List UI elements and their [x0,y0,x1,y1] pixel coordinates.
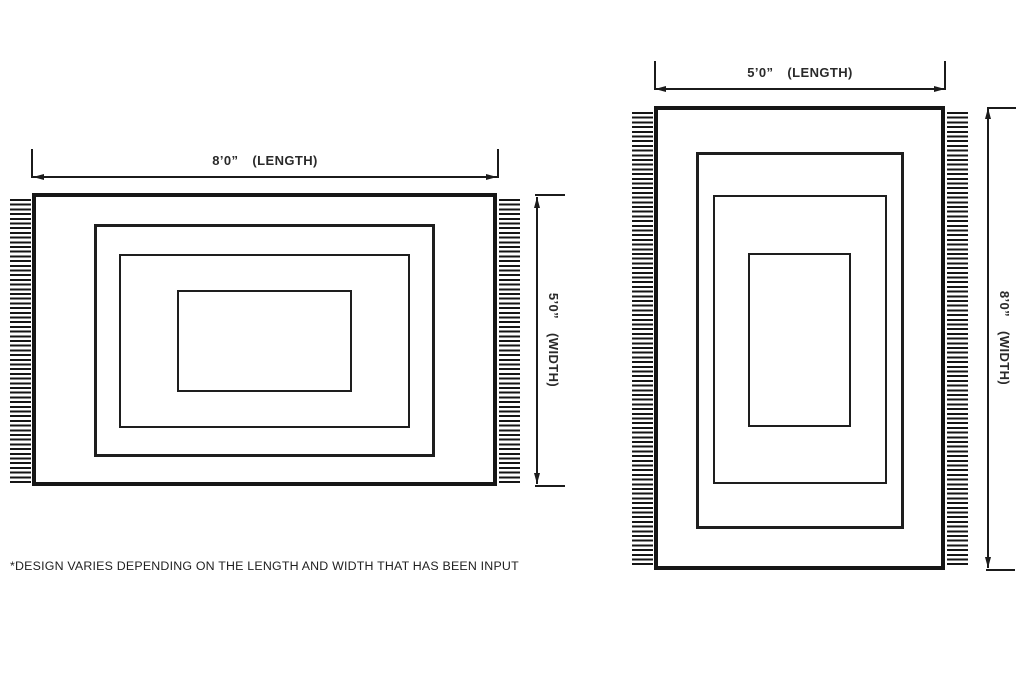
landscape-width-value: 5’0” [546,292,561,318]
landscape-rug-fringe-left [10,199,31,485]
landscape-rug-center-rectangle [177,290,352,392]
landscape-length-extension-line-right [497,149,499,178]
portrait-rug-fringe-right [947,112,968,567]
landscape-rug-fringe-right [499,199,520,485]
arrowhead-left-icon [33,174,44,180]
portrait-length-dimension-line [655,88,945,90]
design-varies-footnote: *DESIGN VARIES DEPENDING ON THE LENGTH A… [10,559,519,573]
arrowhead-right-icon [934,86,945,92]
landscape-length-dimension-line [33,176,497,178]
portrait-width-unit: (WIDTH) [997,331,1012,385]
rug-size-diagram: 8’0”(LENGTH) 5’0”(WIDTH) 5’0”(LENGTH) [0,0,1024,683]
arrowhead-left-icon [655,86,666,92]
landscape-width-unit: (WIDTH) [546,333,561,387]
landscape-width-label: 5’0”(WIDTH) [538,193,568,486]
portrait-width-value: 8’0” [997,291,1012,317]
arrowhead-right-icon [486,174,497,180]
portrait-rug-fringe-left [632,112,653,567]
portrait-length-label: 5’0”(LENGTH) [655,65,945,81]
portrait-rug-center-rectangle [748,253,851,427]
portrait-length-value: 5’0” [747,65,773,80]
portrait-width-label: 8’0”(WIDTH) [989,106,1019,570]
portrait-length-unit: (LENGTH) [787,65,852,80]
landscape-length-label: 8’0”(LENGTH) [33,153,497,169]
landscape-length-value: 8’0” [212,153,238,168]
landscape-length-unit: (LENGTH) [252,153,317,168]
